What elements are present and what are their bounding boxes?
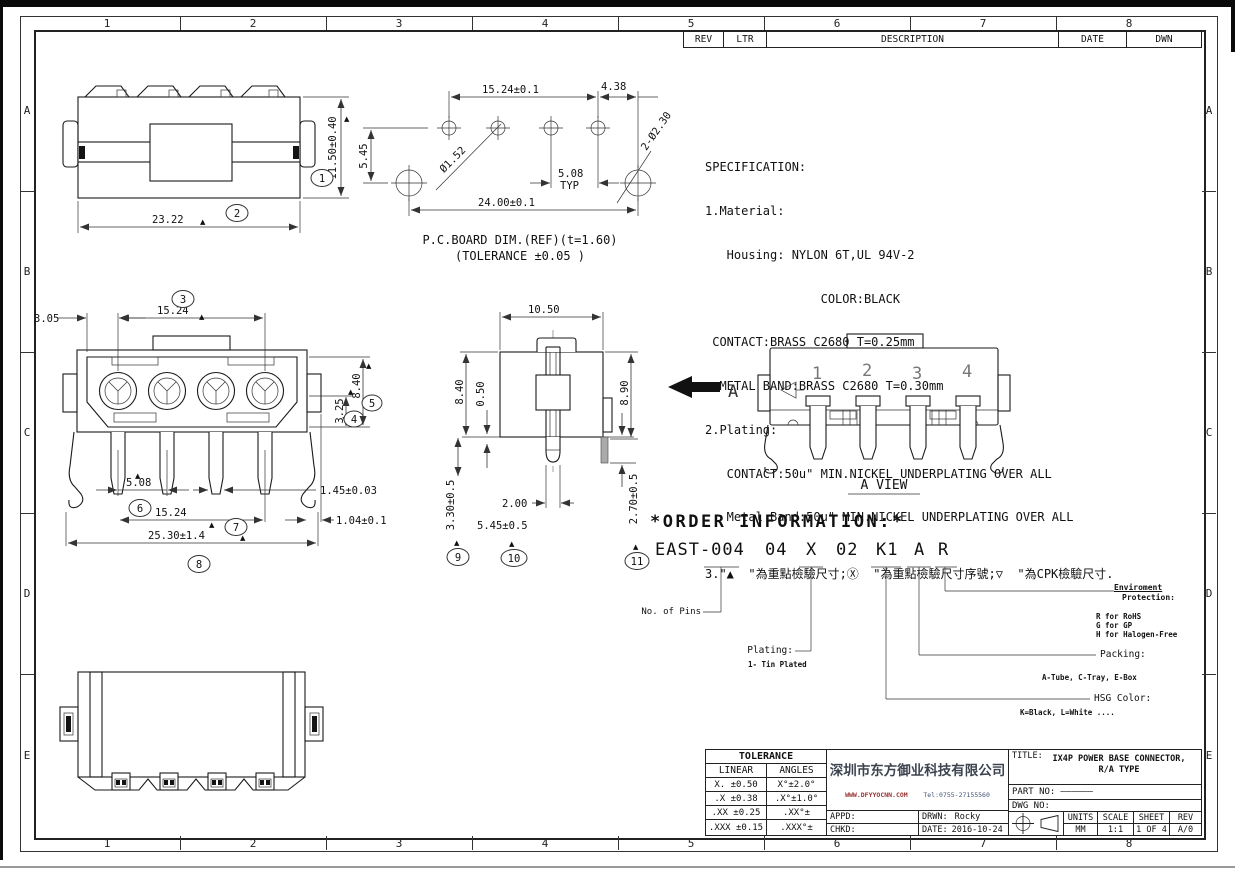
dim-5-45-side: 5.45±0.5 ▲ 10 — [477, 520, 528, 567]
view-direction-arrow — [668, 376, 720, 398]
tolerance-angles-header: ANGLES — [766, 763, 827, 778]
dim-24-00: 24.00±0.1 — [409, 197, 638, 216]
company-cell: 深圳市东方御业科技有限公司 WWW.DFYYOCNN.COM Tel:0755-… — [826, 749, 1009, 811]
dim-2-00: 2.00 — [502, 465, 574, 510]
dim-label: 0.50 — [475, 381, 487, 406]
dim-label: 15.24±0.1 — [482, 84, 539, 96]
order-title: *ORDER INFORMATION:* — [650, 512, 905, 532]
inspection-triangle: ▲ — [509, 540, 515, 548]
dim-label: 10.50 — [528, 304, 560, 316]
tol-cell: .XXX ±0.15 — [705, 819, 767, 836]
tol-cell: .XXX°± — [766, 819, 827, 836]
part-no-value: —————— — [1060, 787, 1093, 797]
dim-2-holes: 2-Ø2.30 — [617, 110, 674, 203]
tol-cell: .X°±1.0° — [766, 791, 827, 806]
dim-label: 2.70±0.5 — [628, 474, 640, 525]
balloon-num: 10 — [508, 553, 521, 565]
inspection-triangle: ▲ — [454, 539, 460, 547]
part-no-cell: PART NO: —————— — [1008, 784, 1202, 800]
tol-cell: .XX°± — [766, 805, 827, 820]
bottom-view — [60, 672, 323, 790]
tolerance-title: TOLERANCE — [705, 749, 827, 764]
pn-seg-02: 02 — [836, 540, 858, 560]
dim-label: 8.40 — [351, 373, 363, 398]
front-view: 3.05 15.24 ▲ 3 3.25 ▲ 4 8.40 — [34, 291, 387, 573]
balloon-num: 1 — [319, 173, 325, 185]
dim-8-90: 8.90 — [605, 352, 638, 439]
drawing-canvas: 11.50±0.40 ▲ 1 23.22 ▲ 2 — [0, 0, 1235, 872]
rev-value-cell: A/0 — [1169, 823, 1202, 836]
part-no-label: PART NO: — [1012, 787, 1055, 797]
dim-label: 11.50±0.40 — [327, 116, 339, 179]
label-env-h: H for Halogen-Free — [1096, 630, 1177, 639]
balloon-num: 6 — [137, 503, 143, 515]
dim-3-05: 3.05 — [34, 313, 146, 371]
company-tel: Tel:0755-27155560 — [923, 791, 990, 799]
label-hsg: HSG Color: — [1094, 693, 1151, 704]
company-web: WWW.DFYYOCNN.COM — [845, 791, 908, 799]
pn-seg-plating: X — [806, 540, 817, 560]
dim-2-70: 2.70±0.5 ▲ 11 — [610, 413, 649, 570]
side-view: 10.50 8.40 0.50 8.90 3.30±0.5 ▲ 9 — [445, 304, 649, 570]
a-view: A 1 2 3 4 A VIEW — [668, 334, 1010, 494]
pin-number-1: 1 — [812, 364, 822, 384]
front-pins — [69, 432, 315, 508]
appd-cell: APPD: — [826, 810, 919, 824]
chkd-cell: CHKD: — [826, 823, 919, 836]
tol-cell: .X ±0.38 — [705, 791, 767, 806]
tol-cell: X. ±0.50 — [705, 777, 767, 792]
dim-label: 23.22 — [152, 214, 184, 226]
balloon-num: 8 — [196, 559, 202, 571]
balloon-1: 1 — [311, 170, 333, 187]
engineering-drawing-page: { "sym": {"tri": "▲"}, "frame": { "cols"… — [0, 0, 1235, 872]
label-env-g: G for GP — [1096, 621, 1132, 630]
inspection-triangle: ▲ — [199, 313, 205, 321]
date-value: 2016-10-24 — [952, 825, 1003, 835]
third-angle-projection-icon — [1010, 812, 1062, 835]
dim-5-45: 5.45 — [358, 128, 428, 183]
label-env-2: Protection: — [1122, 593, 1175, 602]
balloon-num: 9 — [455, 552, 461, 564]
label-no-of-pins: No. of Pins — [640, 607, 701, 617]
dim-label: 2.00 — [502, 498, 527, 510]
scale-value-cell: 1:1 — [1097, 823, 1134, 836]
dim-label: 1.04±0.1 — [336, 515, 387, 527]
pin-number-3: 3 — [912, 364, 922, 384]
inspection-triangle: ▲ — [135, 472, 141, 480]
dim-25-30: 25.30±1.4 ▲ 8 — [66, 512, 318, 573]
dim-label: 25.30±1.4 — [148, 530, 205, 542]
inspection-triangle: ▲ — [209, 521, 215, 529]
dim-label: 5.45±0.5 — [477, 520, 528, 532]
tol-cell: X°±2.0° — [766, 777, 827, 792]
label-plating-sub: 1- Tin Plated — [748, 660, 807, 669]
dim-label: 24.00±0.1 — [478, 197, 535, 209]
dim-label: 5.08 — [558, 168, 583, 180]
dim-label: Ø1.52 — [437, 144, 468, 175]
drawing-title: IX4P POWER BASE CONNECTOR, R/A TYPE — [1039, 754, 1199, 776]
dim-label: 15.24 — [155, 507, 187, 519]
a-view-pins — [765, 396, 1004, 473]
a-view-caption: A VIEW — [861, 478, 908, 493]
date-cell: DATE: 2016-10-24 — [918, 823, 1009, 836]
dim-label: 3.05 — [34, 313, 59, 325]
bottom-teeth — [78, 773, 305, 790]
dim-label: 3.30±0.5 — [445, 480, 457, 531]
label-env-1: Enviroment — [1114, 583, 1162, 592]
pcb-holes — [391, 116, 656, 201]
dim-label: 4.38 — [601, 81, 626, 93]
pin-number-4: 4 — [962, 362, 972, 382]
dim-4-38: 4.38 — [600, 81, 658, 97]
balloon-10: 10 — [501, 550, 527, 567]
dim-15-24-a: 15.24 ▲ 3 — [120, 291, 265, 372]
label-packing: Packing: — [1100, 649, 1146, 660]
balloon-4: 4 — [344, 411, 364, 427]
dim-label: 5.45 — [358, 143, 370, 168]
dim-label: 1.45±0.03 — [320, 485, 377, 497]
dim-5-08-typ: 5.08 TYP — [530, 140, 619, 192]
label-env-r: R for RoHS — [1096, 612, 1141, 621]
top-view: 11.50±0.40 ▲ 1 23.22 ▲ 2 — [63, 86, 350, 233]
pcb-caption-1: P.C.BOARD DIM.(REF)(t=1.60) — [422, 233, 617, 247]
balloon-7: 7 — [225, 519, 247, 536]
pn-seg-series: EAST-004 — [655, 540, 745, 560]
date-label: DATE: — [922, 825, 948, 835]
pn-seg-hsg: K1 — [876, 540, 898, 560]
title-cell: TITLE: IX4P POWER BASE CONNECTOR, R/A TY… — [1008, 749, 1202, 785]
balloon-num: 5 — [369, 398, 375, 410]
pn-seg-env: R — [938, 540, 949, 560]
pin-number-2: 2 — [862, 361, 872, 381]
label-packing-sub: A-Tube, C-Tray, E-Box — [1042, 673, 1137, 682]
dim-0-50: 0.50 — [475, 381, 487, 468]
balloon-num: 11 — [631, 556, 644, 568]
dim-label: TYP — [560, 180, 579, 192]
drwn-cell: DRWN: Rocky — [918, 810, 1009, 824]
pcb-view: 15.24±0.1 4.38 Ø1.52 5.08 TYP 2-Ø2.30 — [358, 81, 674, 263]
tolerance-linear-header: LINEAR — [705, 763, 767, 778]
dim-1-04: 1.04±0.1 — [285, 414, 387, 527]
balloon-num: 2 — [234, 208, 240, 220]
inspection-triangle: ▲ — [633, 543, 639, 551]
balloon-9: 9 — [447, 549, 469, 566]
balloon-num: 7 — [233, 522, 239, 534]
company-name: 深圳市东方御业科技有限公司 — [830, 759, 1006, 779]
balloon-num: 4 — [351, 414, 357, 426]
dim-label: 2-Ø2.30 — [639, 110, 674, 153]
socket-contacts — [100, 373, 284, 410]
units-value-cell: MM — [1063, 823, 1098, 836]
balloon-11: 11 — [625, 553, 649, 570]
title-block: TOLERANCE LINEAR ANGLES X. ±0.50 X°±2.0°… — [705, 749, 1202, 836]
label-plating: Plating: — [742, 645, 793, 656]
inspection-triangle: ▲ — [200, 218, 206, 226]
drwn-label: DRWN: — [922, 812, 948, 822]
balloon-6: 6 — [129, 500, 151, 517]
balloon-8: 8 — [188, 556, 210, 573]
balloon-3: 3 — [172, 291, 194, 308]
tol-cell: .XX ±0.25 — [705, 805, 767, 820]
sheet-value-cell: 1 OF 4 — [1133, 823, 1170, 836]
dim-label: 8.40 — [454, 379, 466, 404]
balloon-num: 3 — [180, 294, 186, 306]
view-arrow-label: A — [728, 382, 738, 402]
dim-15-24-b: 15.24 ▲ 7 — [120, 450, 265, 536]
pn-seg-packing: A — [914, 540, 925, 560]
dim-label: 8.90 — [619, 380, 631, 405]
balloon-2: 2 — [226, 205, 248, 222]
pn-seg-pins: 04 — [765, 540, 787, 560]
balloon-5: 5 — [362, 395, 382, 411]
inspection-triangle: ▲ — [344, 115, 350, 123]
dim-23-22: 23.22 ▲ 2 — [78, 201, 300, 233]
pcb-caption-2: (TOLERANCE ±0.05 ) — [455, 249, 585, 263]
label-hsg-sub: K=Black, L=White .... — [1020, 708, 1115, 717]
inspection-triangle: ▲ — [240, 534, 246, 542]
drwn-value: Rocky — [955, 812, 981, 822]
projection-cell — [1008, 811, 1064, 836]
dim-3-30: 3.30±0.5 ▲ 9 — [445, 438, 469, 566]
inspection-triangle: ▲ — [366, 362, 372, 370]
